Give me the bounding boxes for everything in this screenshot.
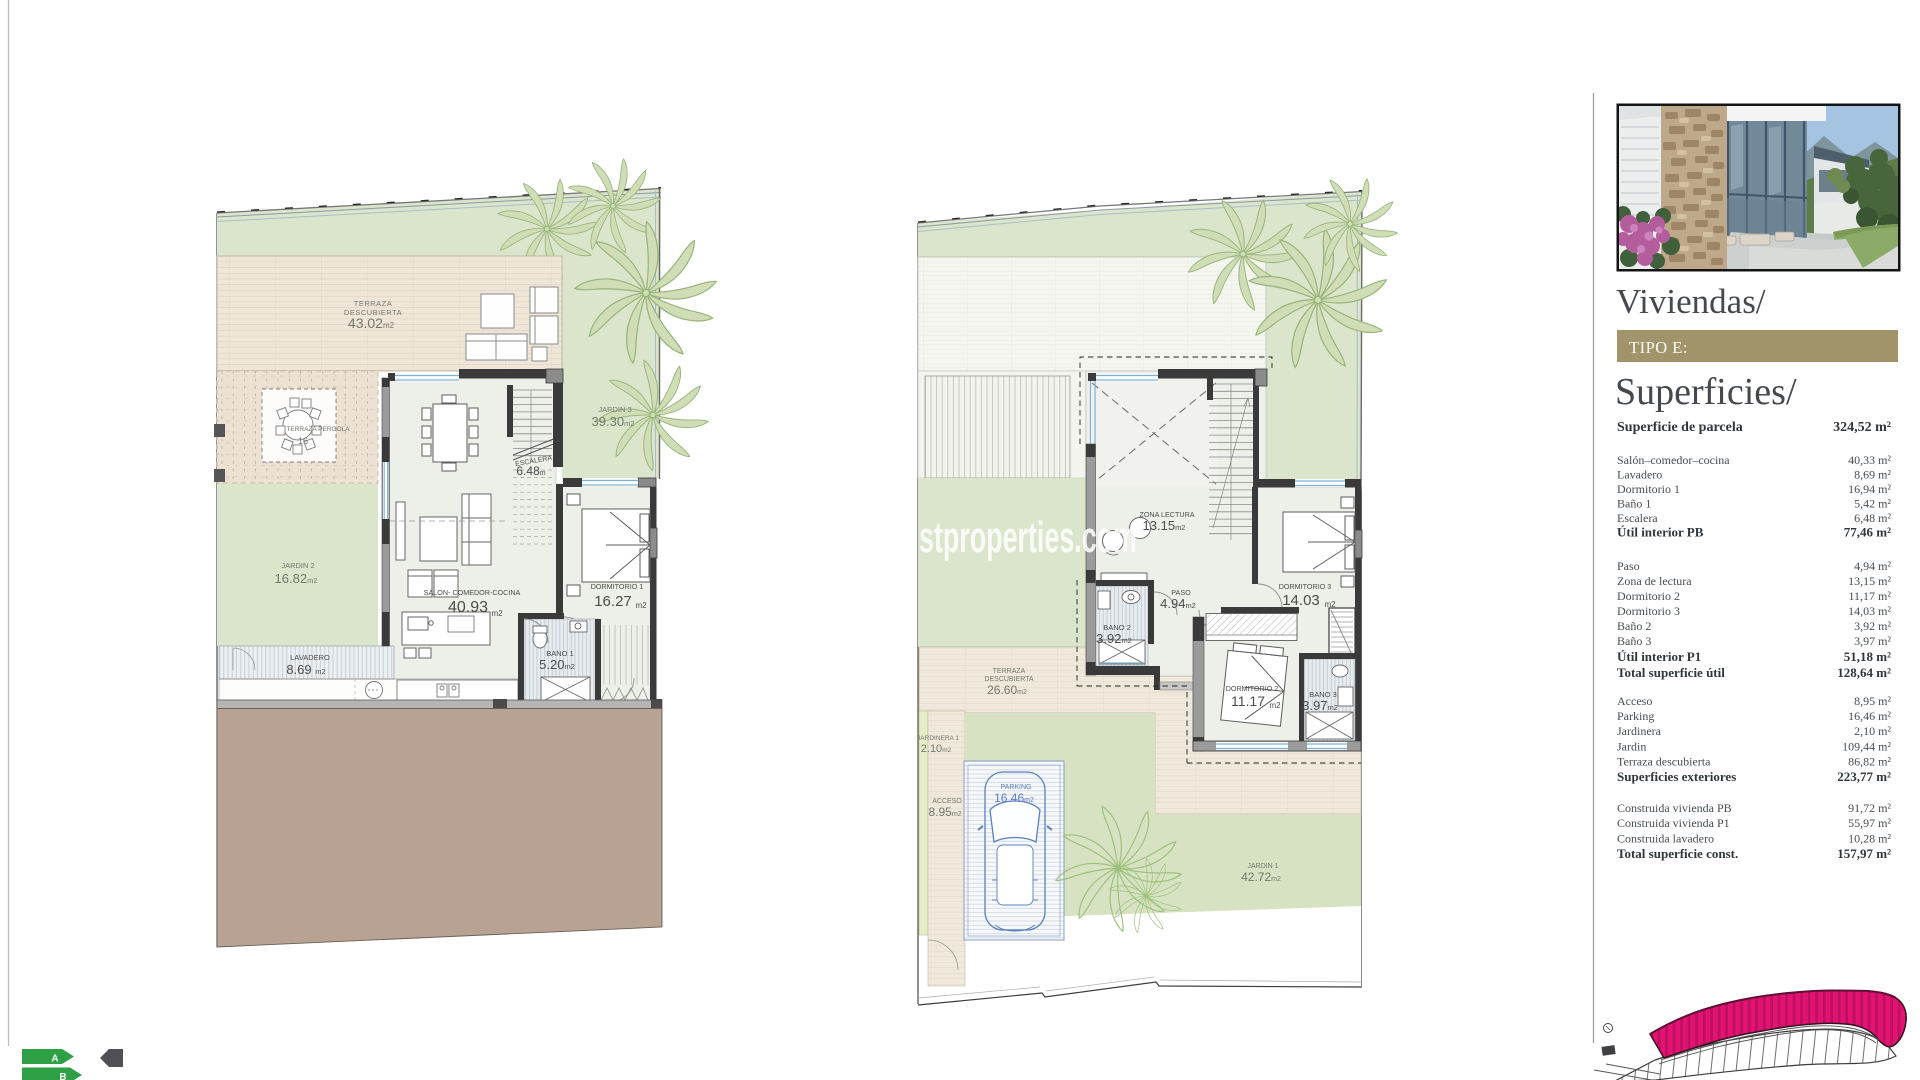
svg-text:Total superficie útil: Total superficie útil xyxy=(1617,665,1725,680)
svg-text:TIPO E:: TIPO E: xyxy=(1629,338,1688,357)
svg-text:128,64 m²: 128,64 m² xyxy=(1837,665,1891,680)
svg-text:Dormitorio 2: Dormitorio 2 xyxy=(1617,589,1680,603)
svg-text:A: A xyxy=(51,1054,58,1065)
svg-text:8,95 m²: 8,95 m² xyxy=(1854,694,1891,708)
svg-text:Total superficie const.: Total superficie const. xyxy=(1617,846,1738,861)
svg-text:DORMITORIO 2: DORMITORIO 2 xyxy=(1226,684,1279,693)
svg-text:6,48 m²: 6,48 m² xyxy=(1854,511,1891,525)
svg-text:4,94 m²: 4,94 m² xyxy=(1854,559,1891,573)
svg-text:Dormitorio 1: Dormitorio 1 xyxy=(1617,482,1680,496)
svg-text:JARDIN 2: JARDIN 2 xyxy=(281,561,314,570)
svg-text:14.03: 14.03 xyxy=(1282,592,1320,609)
svg-text:Construida lavadero: Construida lavadero xyxy=(1617,832,1714,846)
svg-text:55,97 m²: 55,97 m² xyxy=(1848,816,1891,830)
svg-text:TERRAZA PERGOLA: TERRAZA PERGOLA xyxy=(286,426,350,433)
svg-text:TERRAZA: TERRAZA xyxy=(993,668,1026,675)
svg-text:16,46 m²: 16,46 m² xyxy=(1848,709,1891,723)
svg-text:Dormitorio 3: Dormitorio 3 xyxy=(1617,604,1680,618)
svg-text:11,17 m²: 11,17 m² xyxy=(1849,589,1892,603)
svg-text:Construida vivienda P1: Construida vivienda P1 xyxy=(1617,816,1730,830)
svg-text:3,92 m²: 3,92 m² xyxy=(1854,619,1891,633)
svg-text:14,03 m²: 14,03 m² xyxy=(1848,604,1891,618)
svg-text:3,97 m²: 3,97 m² xyxy=(1854,634,1891,648)
svg-text:324,52 m²: 324,52 m² xyxy=(1833,420,1891,435)
svg-text:Acceso: Acceso xyxy=(1617,694,1652,708)
svg-text:m2: m2 xyxy=(491,609,503,618)
svg-text:Terraza descubierta: Terraza descubierta xyxy=(1617,755,1711,769)
svg-text:LAVADERO: LAVADERO xyxy=(290,653,330,662)
svg-text:77,46 m²: 77,46 m² xyxy=(1844,525,1891,540)
svg-text:109,44 m²: 109,44 m² xyxy=(1842,740,1891,754)
svg-text:JARDINERA 1: JARDINERA 1 xyxy=(917,735,959,742)
svg-text:Útil interior P1: Útil interior P1 xyxy=(1617,649,1701,664)
svg-text:86,82 m²: 86,82 m² xyxy=(1848,755,1891,769)
svg-text:2,10 m²: 2,10 m² xyxy=(1854,724,1891,738)
svg-text:16: 16 xyxy=(298,436,308,446)
svg-text:Baño 3: Baño 3 xyxy=(1617,634,1651,648)
svg-text:Viviendas/: Viviendas/ xyxy=(1616,282,1766,321)
svg-text:DESCUBIERTA: DESCUBIERTA xyxy=(984,676,1033,683)
svg-text:Superficies/: Superficies/ xyxy=(1615,371,1797,413)
svg-text:223,77 m²: 223,77 m² xyxy=(1837,769,1891,784)
svg-text:m2: m2 xyxy=(1269,701,1281,710)
svg-text:16.27: 16.27 xyxy=(594,593,632,610)
svg-text:40.93: 40.93 xyxy=(448,599,488,616)
svg-text:11.17: 11.17 xyxy=(1231,693,1265,709)
svg-text:DORMITORIO 1: DORMITORIO 1 xyxy=(591,582,644,591)
svg-text:Salón–comedor–cocina: Salón–comedor–cocina xyxy=(1617,453,1730,467)
svg-text:ACCESO: ACCESO xyxy=(932,798,962,805)
svg-text:16,94 m²: 16,94 m² xyxy=(1848,482,1891,496)
svg-text:Jardinera: Jardinera xyxy=(1617,724,1662,738)
svg-text:Superficie de parcela: Superficie de parcela xyxy=(1617,420,1743,435)
svg-text:Lavadero: Lavadero xyxy=(1617,468,1662,482)
svg-text:m2: m2 xyxy=(635,601,647,610)
svg-text:B: B xyxy=(59,1072,66,1080)
svg-text:Baño 2: Baño 2 xyxy=(1617,619,1651,633)
svg-text:Superficies exteriores: Superficies exteriores xyxy=(1617,769,1736,784)
svg-text:PARKING: PARKING xyxy=(1001,784,1032,791)
svg-text:DORMITORIO 3: DORMITORIO 3 xyxy=(1279,582,1332,591)
svg-text:SALON- COMEDOR-COCINA: SALON- COMEDOR-COCINA xyxy=(424,588,521,597)
svg-text:5,42 m²: 5,42 m² xyxy=(1854,497,1891,511)
svg-text:Parking: Parking xyxy=(1617,709,1654,723)
svg-text:Útil interior PB: Útil interior PB xyxy=(1617,525,1704,540)
svg-text:JARDIN 1: JARDIN 1 xyxy=(1247,863,1278,870)
svg-text:157,97 m²: 157,97 m² xyxy=(1837,846,1891,861)
svg-text:JARDIN 3: JARDIN 3 xyxy=(598,405,631,414)
svg-text:Jardin: Jardin xyxy=(1617,740,1646,754)
svg-text:91,72 m²: 91,72 m² xyxy=(1848,801,1891,815)
svg-text:13,15 m²: 13,15 m² xyxy=(1848,574,1891,588)
svg-text:8,69 m²: 8,69 m² xyxy=(1854,468,1891,482)
svg-text:40,33 m²: 40,33 m² xyxy=(1848,453,1891,467)
svg-text:10,28 m²: 10,28 m² xyxy=(1848,832,1891,846)
svg-text:51,18 m²: 51,18 m² xyxy=(1844,649,1891,664)
svg-text:Baño 1: Baño 1 xyxy=(1617,497,1651,511)
svg-text:Paso: Paso xyxy=(1617,559,1640,573)
svg-text:Zona de lectura: Zona de lectura xyxy=(1617,574,1692,588)
svg-text:TERRAZA: TERRAZA xyxy=(354,299,393,308)
svg-text:stproperties.com: stproperties.com xyxy=(919,513,1137,562)
svg-text:Escalera: Escalera xyxy=(1617,511,1658,525)
svg-text:Construida vivienda PB: Construida vivienda PB xyxy=(1617,801,1732,815)
